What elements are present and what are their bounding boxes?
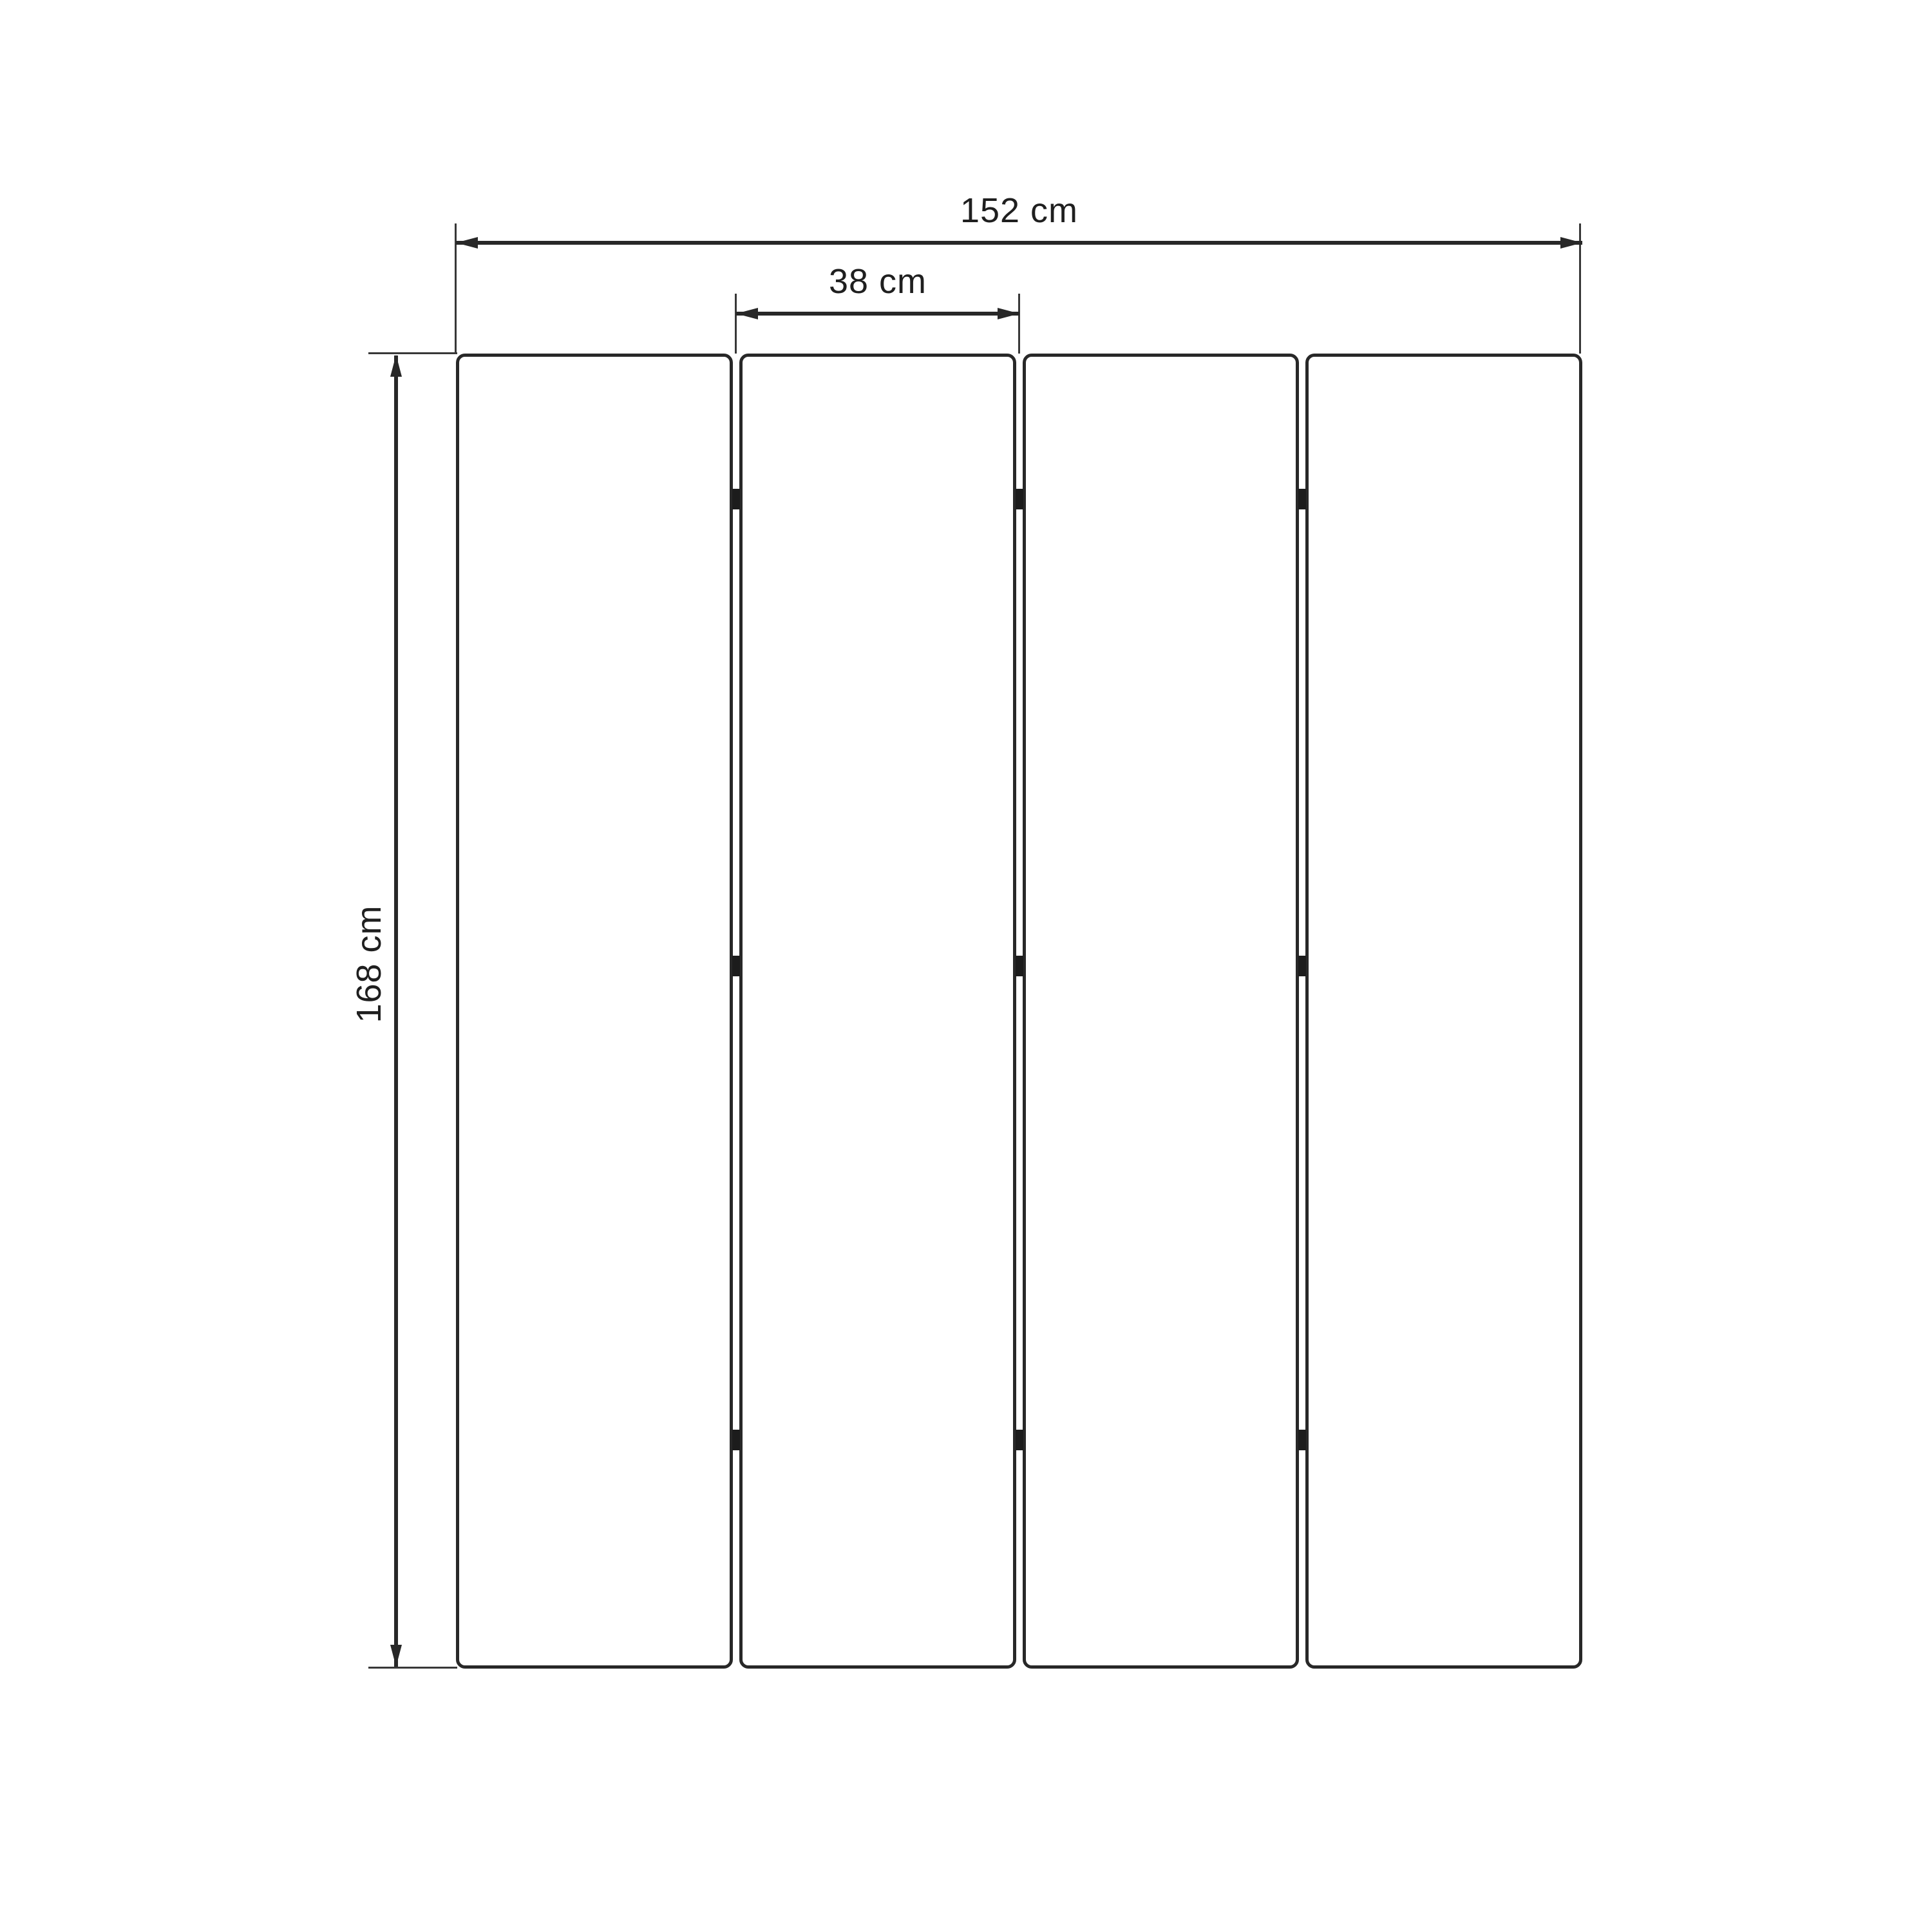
hinge-mark [732, 956, 740, 976]
arrowhead-down-icon [390, 1645, 402, 1667]
hinge-mark [1298, 956, 1306, 976]
total-width-label: 152 cm [456, 191, 1582, 231]
hinge-mark [1298, 489, 1306, 509]
extension-line-panel-right [1018, 294, 1020, 354]
panel [739, 354, 1016, 1669]
panel [456, 354, 733, 1669]
panel-width-dimension-line [736, 312, 1019, 316]
hinge-mark [1298, 1430, 1306, 1450]
extension-line-panel-left [735, 294, 737, 354]
hinge-mark [732, 489, 740, 509]
arrowhead-right-icon [998, 308, 1019, 319]
height-dimension-line [394, 355, 398, 1667]
hinge-mark [1016, 956, 1023, 976]
arrowhead-left-icon [456, 237, 478, 249]
panel [1023, 354, 1300, 1669]
panel-width-label: 38 cm [736, 261, 1019, 301]
arrowhead-left-icon [736, 308, 758, 319]
arrowhead-right-icon [1560, 237, 1582, 249]
hinge-mark [732, 1430, 740, 1450]
screen-panels [456, 354, 1582, 1669]
extension-line-height-bottom [368, 1667, 457, 1669]
arrowhead-up-icon [390, 355, 402, 377]
hinge-mark [1016, 489, 1023, 509]
total-width-dimension-line [456, 241, 1582, 245]
diagram-canvas: 152 cm 38 cm 168 cm [0, 0, 1932, 1932]
extension-line-height-top [368, 352, 457, 354]
panel [1305, 354, 1582, 1669]
height-label: 168 cm [349, 905, 389, 1023]
hinge-mark [1016, 1430, 1023, 1450]
